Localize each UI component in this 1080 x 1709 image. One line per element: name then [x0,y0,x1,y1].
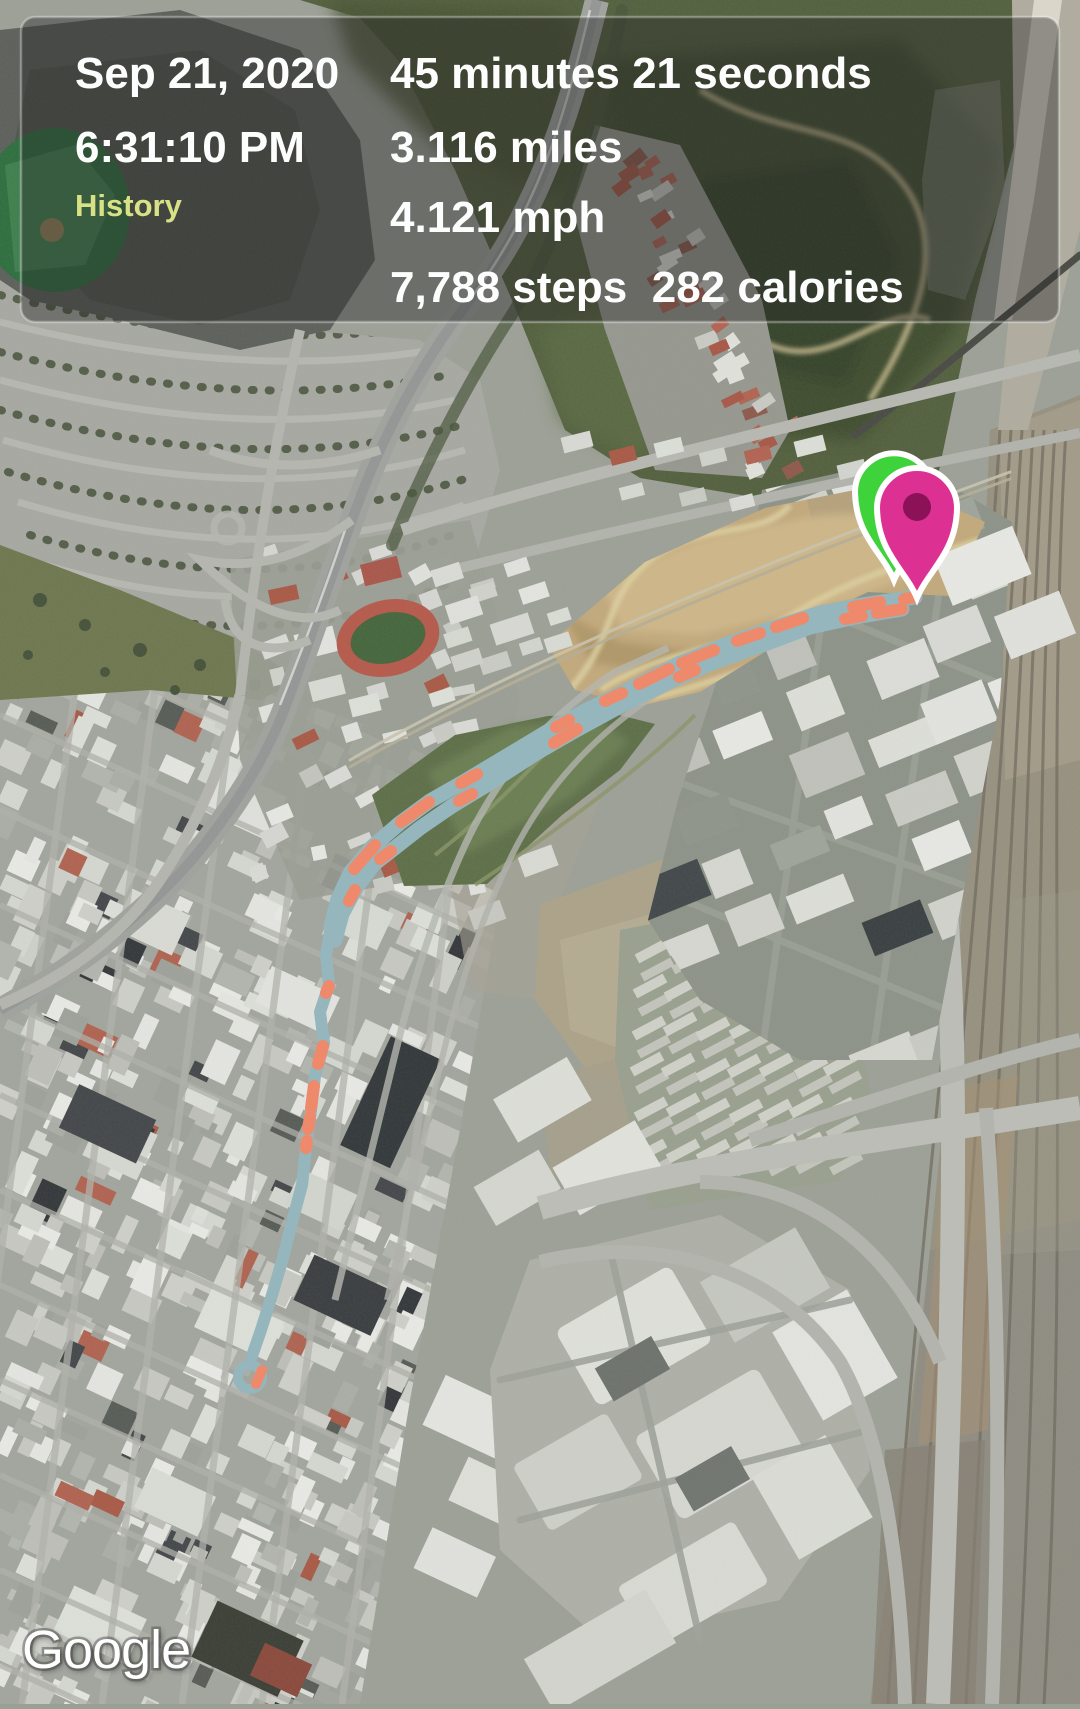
svg-text:3.116 miles: 3.116 miles [390,123,622,172]
svg-text:4.121 mph: 4.121 mph [390,193,605,242]
svg-text:Sep 21, 2020: Sep 21, 2020 [75,49,339,98]
svg-text:7,788 steps 282 calories: 7,788 steps 282 calories [390,263,904,312]
svg-text:45 minutes 21 seconds: 45 minutes 21 seconds [390,49,872,98]
svg-text:6:31:10 PM: 6:31:10 PM [75,123,305,172]
svg-text:Google: Google [22,1620,190,1680]
svg-text:History: History [75,188,183,223]
